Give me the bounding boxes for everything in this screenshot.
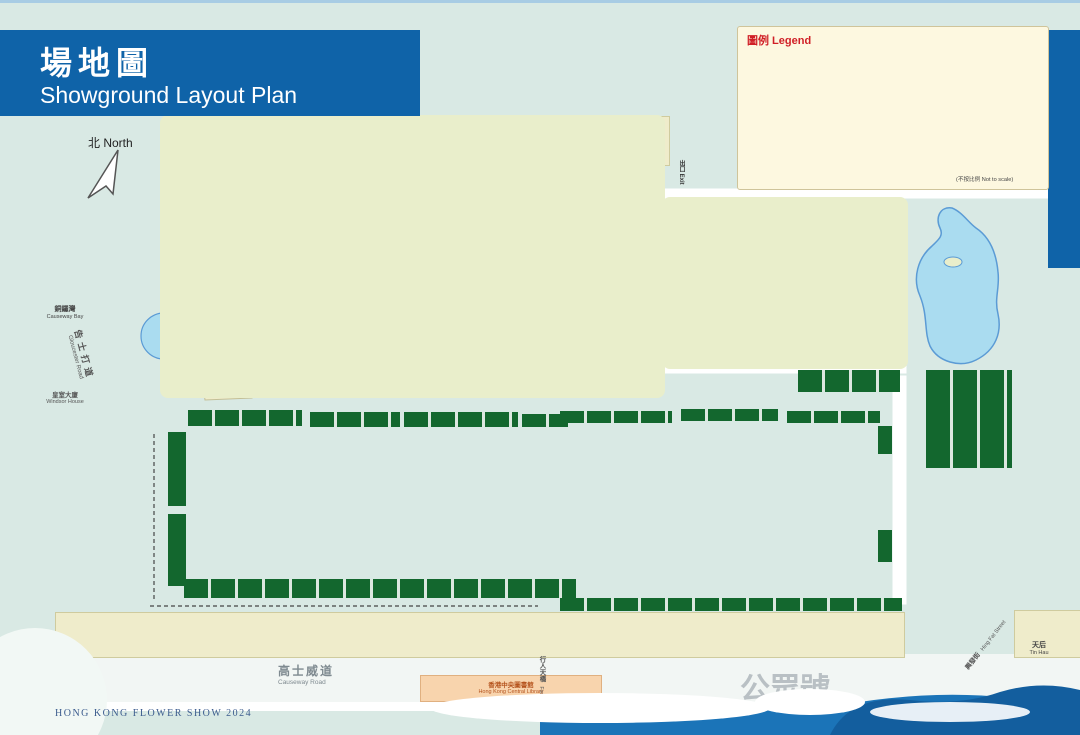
hedge-strip xyxy=(560,598,902,611)
hedge-strip xyxy=(798,370,900,392)
central-library-block: 香港中央圖書館 Hong Kong Central Library xyxy=(420,675,602,702)
hedge-strip-vertical xyxy=(168,432,186,506)
north-arrow-icon xyxy=(88,150,118,198)
hedge-strip-vertical xyxy=(168,514,186,586)
hedge-strip xyxy=(404,412,518,427)
pool-island xyxy=(944,257,962,267)
exit4-direction-label: 出口 Exit xyxy=(672,160,690,206)
legend-note: (不按比例 Not to scale) xyxy=(956,175,1013,183)
causeway-road-label: 高士威道 Causeway Road xyxy=(278,662,334,686)
title-banner: 場地圖 Showground Layout Plan xyxy=(0,30,420,116)
map-title-zh: 場地圖 xyxy=(40,38,154,84)
showground-layout-map: 場地圖 Showground Layout Plan 圖例 Legend (不按… xyxy=(0,0,1080,735)
hedge-strip xyxy=(560,411,672,423)
hedge-strip-vertical xyxy=(878,426,892,454)
top-accent-line xyxy=(0,0,1080,3)
building-block xyxy=(58,550,134,594)
swimming-pool-lake xyxy=(916,208,999,364)
upper-park-area xyxy=(160,115,665,398)
hedge-strip xyxy=(310,412,400,427)
windsor-house-label: 皇室大廈 Windsor House xyxy=(30,392,100,405)
tin-hau-label: 天后 Tin Hau xyxy=(1022,642,1056,656)
footbridge-label: 行人天橋 Footbridge xyxy=(532,656,550,716)
legend-panel: 圖例 Legend (不按比例 Not to scale) xyxy=(737,26,1049,190)
hedge-strip xyxy=(681,409,778,421)
building-block xyxy=(96,596,182,618)
hedge-strip-vertical xyxy=(878,530,892,562)
hedge-strip xyxy=(188,410,302,426)
wechat-watermark-text: 公眾號 xyxy=(740,664,830,708)
building-block xyxy=(210,568,260,598)
causeway-bay-label: 銅鑼灣 Causeway Bay xyxy=(40,306,90,320)
show-title-footer: HONG KONG FLOWER SHOW 2024 xyxy=(55,708,252,719)
hedge-strip xyxy=(787,411,880,423)
right-accent-strip xyxy=(1048,30,1080,268)
north-label: 北 North xyxy=(88,134,133,151)
east-park-area xyxy=(662,197,908,369)
legend-title: 圖例 Legend xyxy=(747,32,811,48)
hedge-strip xyxy=(926,370,1012,468)
south-sidewalk xyxy=(55,612,905,658)
map-title-en: Showground Layout Plan xyxy=(40,82,297,109)
